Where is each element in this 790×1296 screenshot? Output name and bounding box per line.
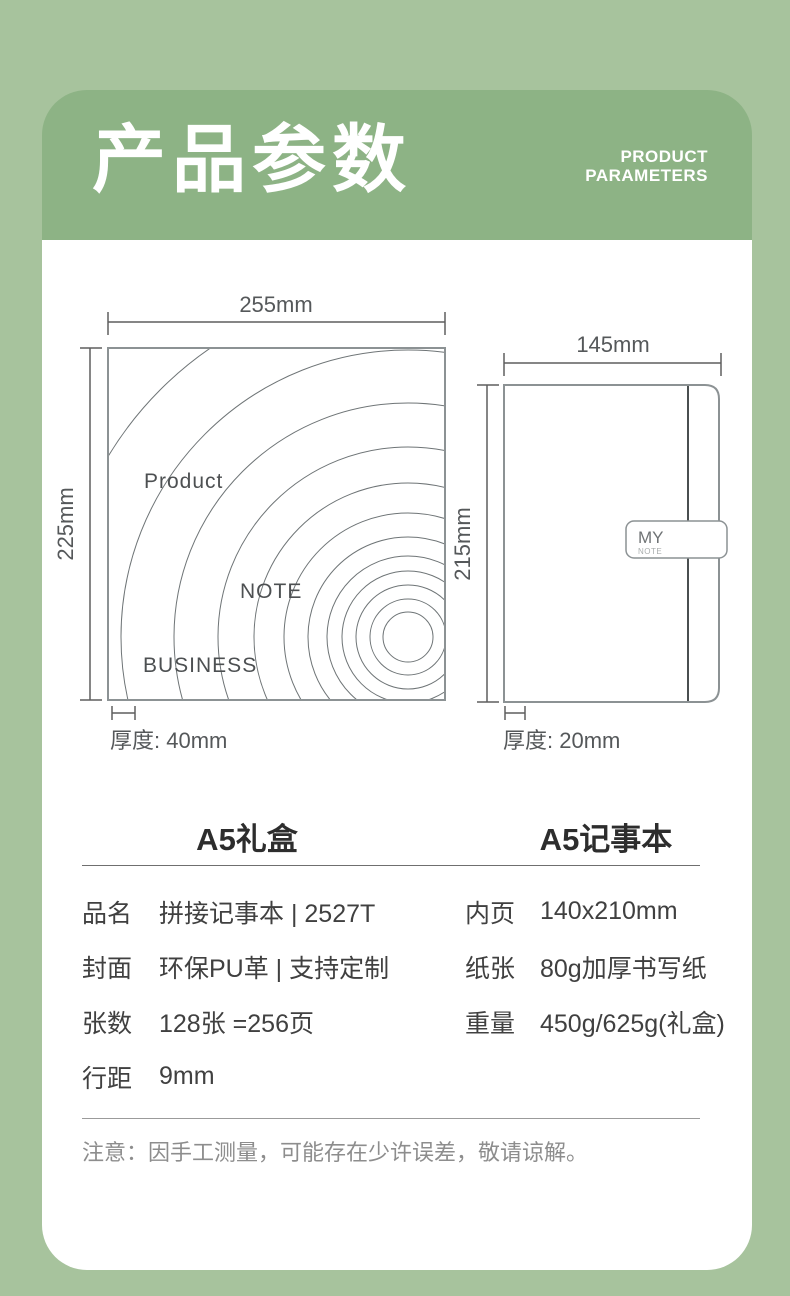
- spec-value: 9mm: [159, 1062, 215, 1091]
- spec-value: 128张 =256页: [159, 1004, 314, 1040]
- notebook-tab-text-note: NOTE: [638, 547, 662, 556]
- spec-label: 重量: [465, 1004, 540, 1040]
- notebook-height-label: 215mm: [450, 507, 475, 580]
- spec-column-notebook: 内页 140x210mm 纸张 80g加厚书写纸 重量 450g/625g(礼盒…: [465, 884, 722, 1104]
- giftbox-word-note: NOTE: [240, 580, 302, 603]
- footnote: 注意：因手工测量，可能存在少许误差，敬请谅解。: [82, 1135, 588, 1167]
- giftbox-height-label: 225mm: [53, 487, 78, 560]
- spec-label: 封面: [82, 949, 159, 985]
- spec-value: 80g加厚书写纸: [540, 949, 707, 985]
- spec-value: 140x210mm: [540, 897, 678, 926]
- spec-row-zhongliang: 重量 450g/625g(礼盒): [465, 994, 722, 1049]
- notebook-thickness-label: 厚度: 20mm: [503, 728, 620, 753]
- header-panel: 产品参数 PRODUCT PARAMETERS: [42, 90, 752, 250]
- spec-value: 450g/625g(礼盒): [540, 1004, 725, 1040]
- spec-label: 行距: [82, 1059, 159, 1095]
- section-title-notebook: A5记事本: [540, 814, 673, 859]
- page-title: 产品参数: [92, 118, 412, 202]
- spec-value: 拼接记事本 | 2527T: [159, 894, 375, 930]
- spec-table: 品名 拼接记事本 | 2527T 封面 环保PU革 | 支持定制 张数 128张…: [82, 884, 722, 1104]
- giftbox-outline: [108, 348, 445, 700]
- page-subtitle-line2: PARAMETERS: [585, 166, 708, 185]
- spec-label: 张数: [82, 1004, 159, 1040]
- section-title-giftbox: A5礼盒: [196, 814, 298, 859]
- spec-row-zhizhang: 纸张 80g加厚书写纸: [465, 939, 722, 994]
- notebook-height-dimension-line: [477, 385, 499, 702]
- spec-row-neiye: 内页 140x210mm: [465, 884, 722, 939]
- notebook-tab-text-my: MY: [638, 528, 664, 547]
- giftbox-thickness-bracket: [112, 706, 135, 720]
- giftbox-height-dimension-line: [80, 348, 102, 700]
- spec-row-zhangshu: 张数 128张 =256页: [82, 994, 465, 1049]
- spec-row-hangju: 行距 9mm: [82, 1049, 465, 1104]
- giftbox-word-business: BUSINESS: [143, 654, 257, 677]
- giftbox-width-label: 255mm: [239, 292, 312, 317]
- spec-label: 内页: [465, 894, 540, 930]
- page-subtitle: PRODUCT PARAMETERS: [585, 147, 708, 185]
- notebook-diagram: 145mm 215mm MY: [450, 332, 727, 753]
- content-card: 255mm 225mm: [42, 240, 752, 1270]
- page-subtitle-line1: PRODUCT: [585, 147, 708, 166]
- spec-column-giftbox: 品名 拼接记事本 | 2527T 封面 环保PU革 | 支持定制 张数 128张…: [82, 884, 465, 1104]
- giftbox-word-product: Product: [144, 470, 223, 493]
- spec-value: 环保PU革 | 支持定制: [159, 949, 389, 985]
- giftbox-thickness-label: 厚度: 40mm: [110, 728, 227, 753]
- divider-top: [82, 865, 700, 866]
- spec-row-fengmian: 封面 环保PU革 | 支持定制: [82, 939, 465, 994]
- dimension-diagrams: 255mm 225mm: [42, 240, 752, 770]
- notebook-thickness-bracket: [505, 706, 525, 720]
- spec-row-pinming: 品名 拼接记事本 | 2527T: [82, 884, 465, 939]
- divider-bottom: [82, 1118, 700, 1119]
- product-parameters-page: 产品参数 PRODUCT PARAMETERS 255mm 225mm: [0, 0, 790, 1296]
- spec-label: 品名: [82, 894, 159, 930]
- spec-label: 纸张: [465, 949, 540, 985]
- notebook-width-label: 145mm: [576, 332, 649, 357]
